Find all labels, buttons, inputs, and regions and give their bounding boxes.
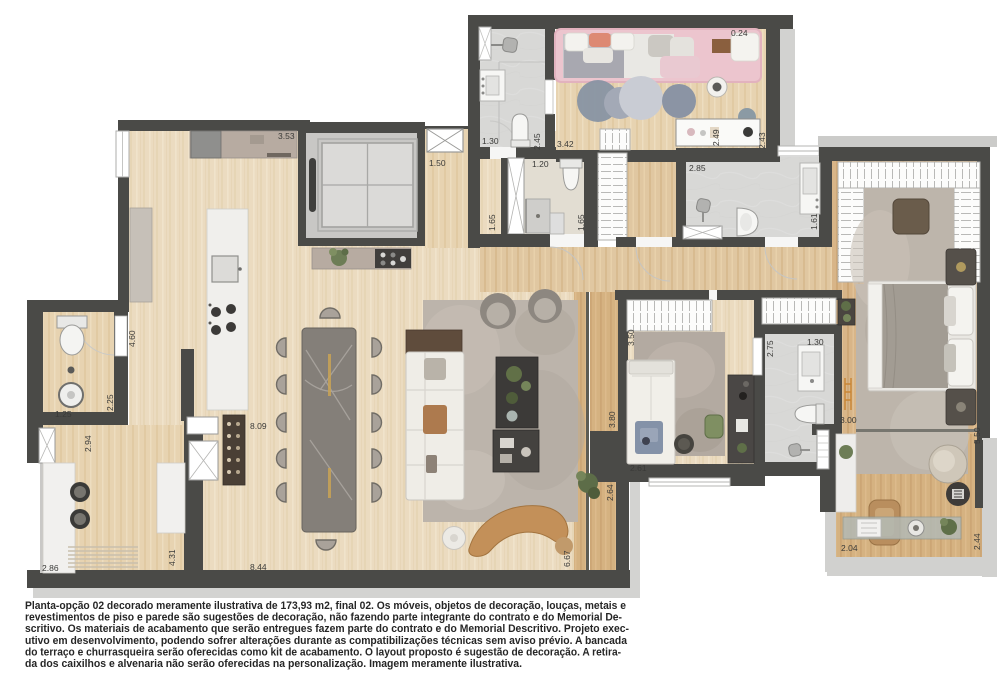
svg-text:1.65: 1.65 [576,214,586,231]
svg-text:da dos caixilhos e alvenaria n: da dos caixilhos e alvenaria não serão o… [25,658,522,670]
svg-text:1.61: 1.61 [809,213,819,230]
svg-text:do terraço e churrasqueira ser: do terraço e churrasqueira serão ofereci… [25,646,621,658]
svg-text:2.85: 2.85 [689,163,706,173]
svg-text:3.00: 3.00 [840,415,857,425]
svg-text:2.45: 2.45 [532,133,542,150]
svg-text:2.43: 2.43 [757,132,767,149]
svg-text:2.94: 2.94 [83,435,93,452]
svg-text:2.25: 2.25 [105,394,115,411]
svg-text:2.61: 2.61 [630,463,647,473]
svg-text:3.80: 3.80 [607,411,617,428]
svg-text:utivo em desenvolvimento, pode: utivo em desenvolvimento, podendo sofrer… [25,635,628,647]
svg-text:1.30: 1.30 [807,337,824,347]
svg-text:scritivo. Os materiais de acab: scritivo. Os materiais de acabamento que… [25,623,629,635]
svg-text:3.42: 3.42 [557,139,574,149]
svg-text:4.31: 4.31 [167,549,177,566]
svg-text:2.86: 2.86 [42,563,59,573]
svg-text:8.09: 8.09 [250,421,267,431]
svg-text:2.44: 2.44 [972,533,982,550]
svg-text:4.60: 4.60 [127,330,137,347]
svg-text:2.04: 2.04 [841,543,858,553]
svg-text:3.50: 3.50 [626,329,636,346]
svg-text:revestimentos de piso e parede: revestimentos de piso e parede são suges… [25,612,622,624]
svg-text:5.50: 5.50 [972,427,982,444]
svg-text:0.24: 0.24 [731,28,748,38]
svg-text:1.30: 1.30 [482,136,499,146]
svg-text:6.67: 6.67 [562,550,572,567]
svg-text:1.20: 1.20 [532,159,549,169]
svg-text:2.49: 2.49 [711,129,721,146]
svg-text:Planta-opção 02 decorado meram: Planta-opção 02 decorado meramente ilust… [25,600,626,612]
svg-text:1.50: 1.50 [429,158,446,168]
svg-text:3.53: 3.53 [278,131,295,141]
svg-text:8.44: 8.44 [250,562,267,572]
svg-text:2.75: 2.75 [765,340,775,357]
svg-text:1.65: 1.65 [487,214,497,231]
svg-text:1.25: 1.25 [55,409,72,419]
svg-text:2.64: 2.64 [605,484,615,501]
